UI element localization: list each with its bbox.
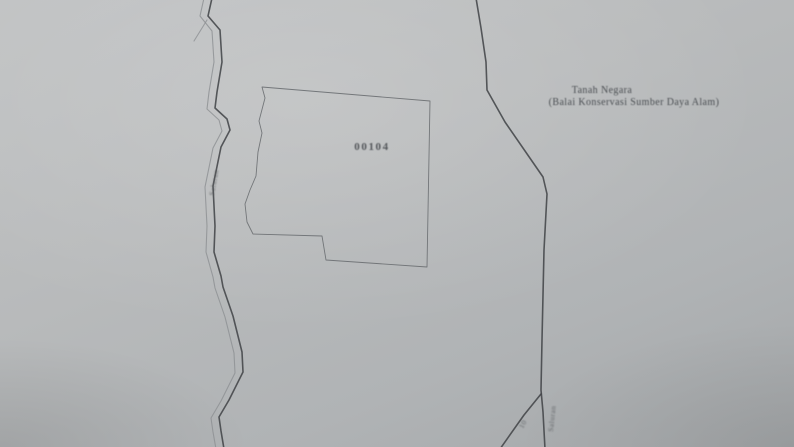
drainage-label: Saluran [546, 405, 558, 432]
drainage-width-label: 10 [517, 418, 529, 430]
cadastral-map-drawing: 00104 Tanah Negara (Balai Konservasi Sum… [0, 0, 794, 447]
state-land-label-line2: (Balai Konservasi Sumber Daya Alam) [549, 97, 720, 108]
scanned-cadastral-map-photo: 00104 Tanah Negara (Balai Konservasi Sum… [0, 0, 794, 447]
parcel-00104-outline [245, 87, 430, 267]
left-boundary-label: Saluran [207, 169, 220, 197]
right-boundary-line [476, 0, 547, 447]
parcel-number-label: 00104 [354, 141, 390, 153]
state-land-label-line1: Tanah Negara [572, 85, 633, 96]
junction-tick [194, 20, 207, 41]
left-boundary-outer-line [200, 0, 235, 447]
